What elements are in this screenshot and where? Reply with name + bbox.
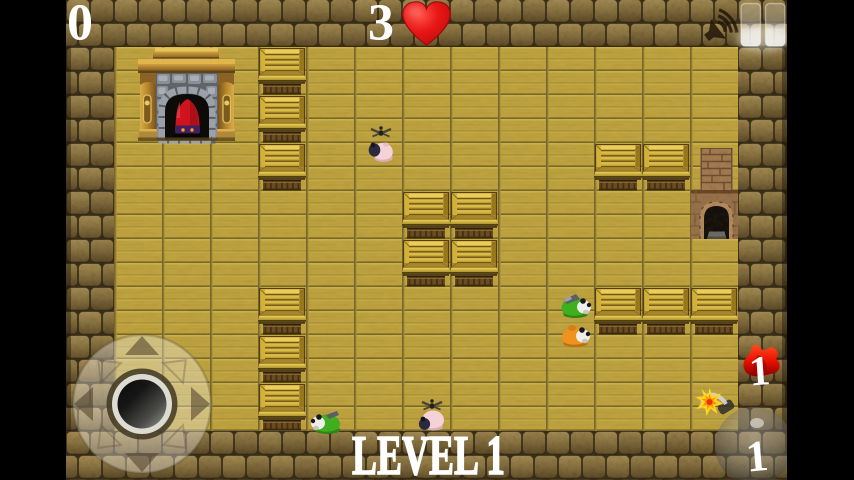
svg-text:1: 1 bbox=[748, 348, 772, 395]
svg-text:0: 0 bbox=[67, 0, 93, 52]
svg-text:1: 1 bbox=[744, 431, 770, 480]
svg-text:LEVEL 1: LEVEL 1 bbox=[352, 425, 505, 480]
svg-text:3: 3 bbox=[368, 0, 394, 52]
